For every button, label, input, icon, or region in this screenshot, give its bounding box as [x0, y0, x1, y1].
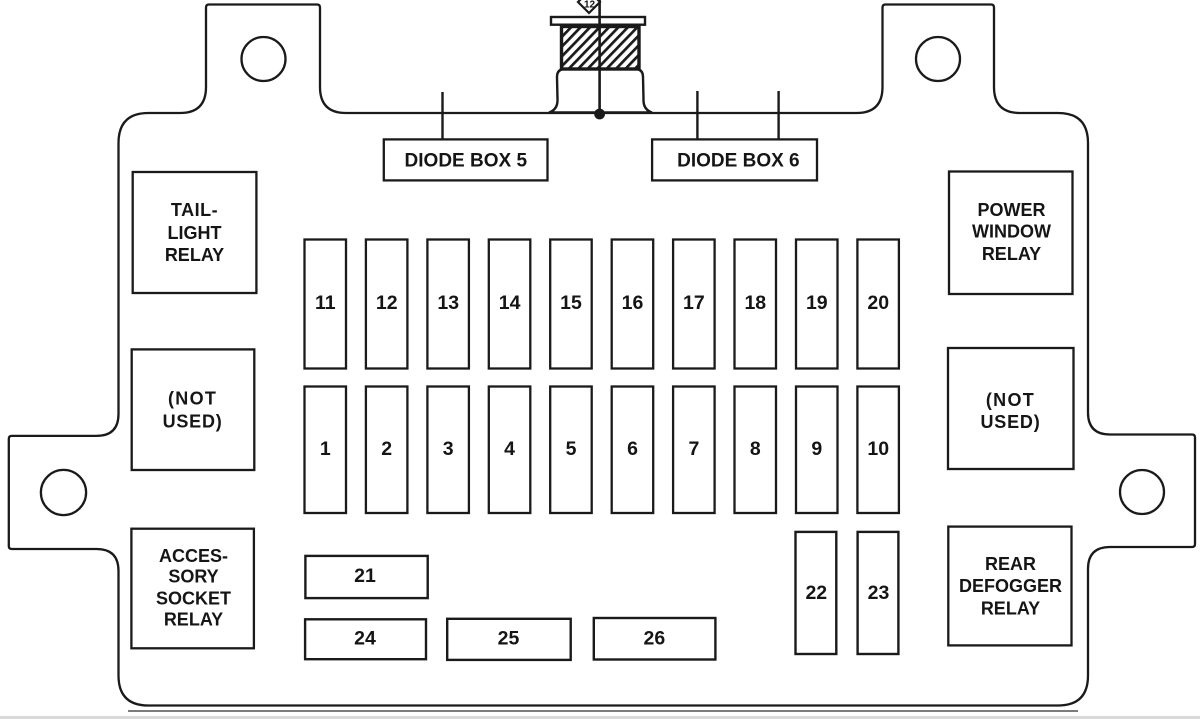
svg-text:TAIL-: TAIL-	[171, 200, 218, 220]
svg-text:22: 22	[805, 582, 827, 604]
svg-text:USED): USED)	[163, 412, 223, 432]
svg-text:15: 15	[560, 292, 582, 314]
svg-text:24: 24	[354, 628, 376, 650]
svg-text:16: 16	[622, 292, 644, 314]
svg-text:DIODE BOX 6: DIODE BOX 6	[677, 150, 799, 171]
svg-text:25: 25	[498, 628, 520, 650]
svg-text:SORY: SORY	[168, 567, 218, 587]
svg-text:(NOT: (NOT	[168, 389, 217, 409]
svg-text:7: 7	[688, 438, 699, 460]
svg-text:12: 12	[584, 0, 596, 11]
svg-text:3: 3	[443, 438, 454, 460]
svg-text:12: 12	[376, 292, 398, 314]
svg-text:10: 10	[867, 438, 889, 460]
svg-text:8: 8	[750, 438, 761, 460]
svg-text:1: 1	[320, 438, 331, 460]
svg-text:RELAY: RELAY	[981, 599, 1040, 619]
svg-text:21: 21	[354, 565, 376, 587]
svg-text:20: 20	[867, 292, 889, 314]
svg-text:19: 19	[806, 292, 828, 314]
svg-text:13: 13	[437, 292, 459, 314]
svg-text:4: 4	[504, 438, 515, 460]
svg-text:9: 9	[811, 438, 822, 460]
svg-text:(NOT: (NOT	[986, 390, 1035, 410]
svg-text:DEFOGGER: DEFOGGER	[959, 576, 1062, 596]
svg-text:18: 18	[744, 292, 766, 314]
svg-text:6: 6	[627, 438, 638, 460]
svg-text:14: 14	[499, 292, 521, 314]
svg-text:POWER: POWER	[977, 200, 1045, 220]
svg-text:RELAY: RELAY	[164, 610, 223, 630]
svg-text:2: 2	[381, 438, 392, 460]
svg-text:WINDOW: WINDOW	[972, 222, 1051, 242]
svg-text:17: 17	[683, 292, 705, 314]
svg-text:DIODE BOX 5: DIODE BOX 5	[405, 150, 528, 171]
svg-text:ACCES-: ACCES-	[159, 546, 228, 566]
svg-text:RELAY: RELAY	[165, 245, 224, 265]
svg-text:5: 5	[566, 438, 577, 460]
svg-text:USED): USED)	[980, 412, 1040, 432]
svg-text:LIGHT: LIGHT	[168, 223, 222, 243]
svg-text:REAR: REAR	[985, 554, 1036, 574]
svg-text:RELAY: RELAY	[982, 244, 1041, 264]
svg-text:23: 23	[868, 582, 890, 604]
svg-text:11: 11	[315, 292, 336, 314]
svg-text:26: 26	[644, 628, 666, 650]
svg-text:SOCKET: SOCKET	[156, 589, 231, 609]
